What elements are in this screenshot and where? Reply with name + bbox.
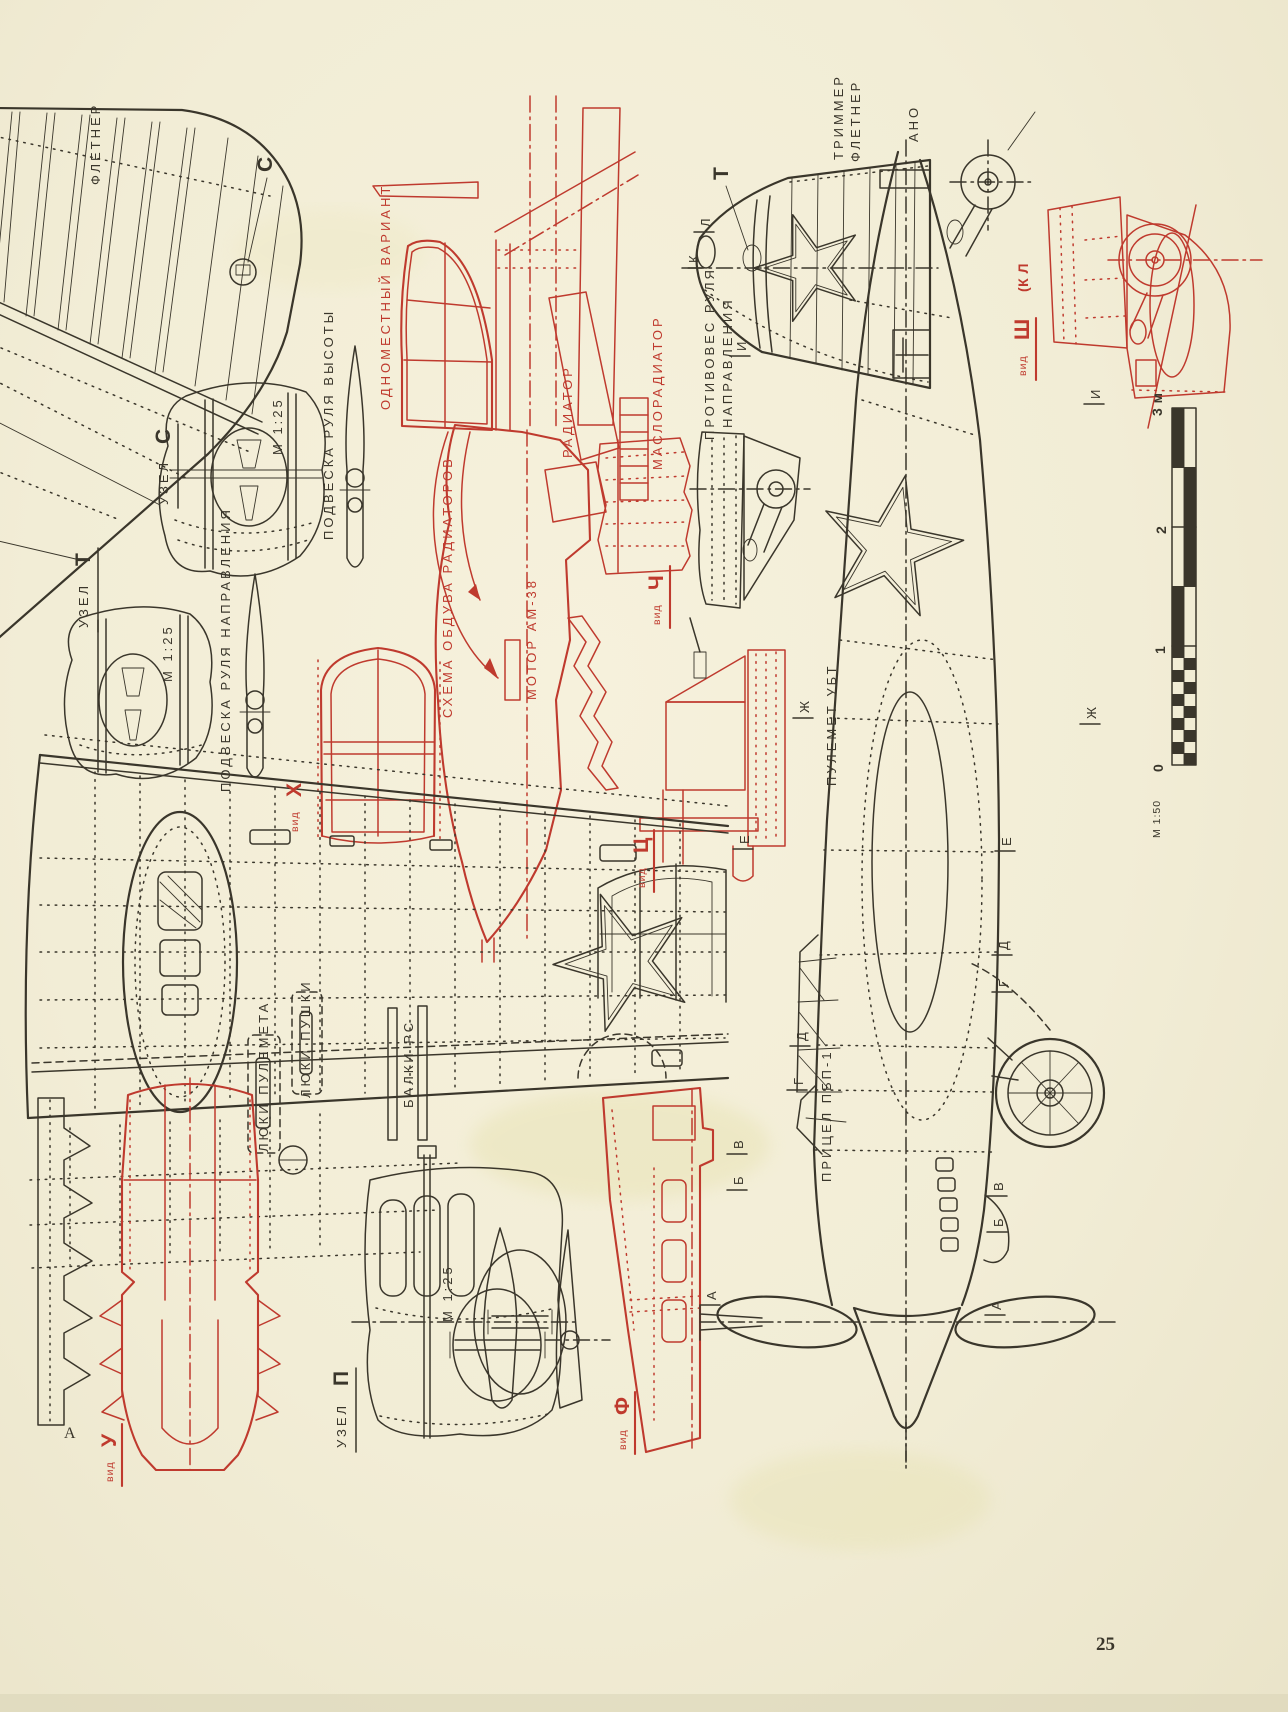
view-ch-drawing	[598, 438, 692, 574]
machine-gun-label: ПУЛЕМЕТ УБТ	[824, 663, 839, 786]
node-p-word: УЗЕЛ	[334, 1403, 349, 1448]
view-u-drawing	[100, 1078, 280, 1470]
section-mark-letter: Е	[737, 832, 752, 844]
callout-t-letter: Т	[710, 167, 733, 180]
tailwheel-drawing	[947, 112, 1035, 256]
stabilizer-plan-drawing	[0, 108, 302, 642]
scale-tick-1: 1	[1152, 646, 1168, 654]
view-ts-drawing	[568, 616, 785, 881]
section-mark-letter: И	[1088, 387, 1103, 399]
scale-bar: 0 1 2 3 м М 1:50	[1149, 392, 1196, 838]
node-t-word: УЗЕЛ	[76, 583, 91, 628]
section-mark-letter: Д	[996, 938, 1011, 950]
blueprint-figure: 0 1 2 3 м М 1:50 А А Б В Б В Г Д Г Д Е Е…	[0, 0, 1288, 1712]
scale-ratio: М 1:50	[1151, 800, 1163, 838]
section-mark-letter: В	[991, 1179, 1006, 1191]
section-mark-letter: Г	[996, 977, 1011, 987]
paper-stains	[0, 210, 1288, 1712]
node-c-word: УЗЕЛ	[156, 460, 171, 505]
gun-sight-label: ПРИЦЕЛ ПБП-1	[819, 1049, 834, 1182]
view-ts-prefix: вид	[636, 867, 648, 888]
node-t-scale: М 1:25	[160, 624, 175, 682]
section-mark-letter: А	[704, 1288, 719, 1300]
scale-tick-0: 0	[1150, 764, 1166, 772]
view-sh-suffix: (К Л	[1015, 263, 1031, 292]
cooling-scheme-label: СХЕМА ОБДУВА РАДИАТОРОВ	[440, 456, 455, 718]
control-surface-sections	[240, 346, 370, 777]
node-t-letter: Т	[72, 553, 95, 566]
section-mark-letter: Г	[791, 1075, 806, 1085]
node-c-letter: С	[152, 429, 175, 444]
view-u-letter: У	[98, 1433, 121, 1447]
fuselage-side-view-drawing	[700, 140, 1115, 1470]
section-mark-letter: А	[989, 1298, 1004, 1310]
rudder-hinge-label: ПОДВЕСКА РУЛЯ НАПРАВЛЕНИЯ	[218, 507, 233, 792]
counterweight-label-line1: ПРОТИВОВЕС РУЛЯ	[702, 267, 717, 440]
section-mark-letter: И	[734, 339, 749, 351]
section-mark-letter: Б	[991, 1215, 1006, 1227]
node-p-letter: П	[330, 1371, 353, 1386]
view-x-prefix: вид	[289, 811, 301, 832]
nav-light-label: АНО	[906, 105, 921, 142]
trimmer-label-line2: ФЛЕТНЕР	[848, 80, 863, 162]
scale-tick-3: 3 м	[1149, 392, 1165, 416]
view-u-prefix: вид	[104, 1461, 116, 1482]
node-p-scale: М 1:25	[440, 1264, 455, 1322]
page-number: 25	[1096, 1634, 1115, 1655]
section-mark-letter: Ж	[797, 698, 812, 713]
engine-label: МОТОР АМ-38	[524, 578, 539, 700]
mg-hatches-label: ЛЮКИ ПУЛЕМЕТА	[256, 1001, 271, 1152]
cannon-hatches-label: ЛЮКИ ПУШКИ	[298, 979, 313, 1098]
corner-mark: А	[64, 1425, 76, 1442]
rear-canopy-frame-drawing	[598, 864, 726, 1002]
rocket-rails-label: БАЛКИ РС	[401, 1020, 416, 1108]
callout-c-letter: С	[254, 157, 277, 172]
single-seat-label: ОДНОМЕСТНЫЙ ВАРИАНТ	[378, 184, 393, 410]
view-x-letter: X	[283, 783, 306, 797]
view-sh-letter: Ш	[1011, 319, 1034, 340]
trimmer-label-line1: ТРИММЕР	[831, 74, 846, 160]
section-mark-letter: Ж	[1084, 704, 1099, 719]
elevator-hinge-label: ПОДВЕСКА РУЛЯ ВЫСОТЫ	[321, 309, 336, 540]
windshield-frame-drawing	[318, 648, 440, 843]
radiator-label: РАДИАТОР	[560, 365, 575, 458]
scale-tick-2: 2	[1153, 526, 1169, 534]
counterweight-detail-drawing	[690, 432, 810, 608]
section-mark-letter: В	[731, 1137, 746, 1149]
fletner-label: ФЛЕТНЕР	[88, 103, 103, 185]
section-mark-letter: Д	[794, 1029, 809, 1041]
node-t-detail-drawing	[64, 607, 212, 779]
view-ch-prefix: вид	[651, 604, 663, 625]
node-c-detail-drawing	[159, 383, 325, 576]
view-ch-letter: Ч	[645, 575, 668, 590]
oil-cooler-label: МАСЛОРАДИАТОР	[650, 315, 665, 470]
view-f-prefix: вид	[617, 1429, 629, 1450]
magazine-page-scan: 0 1 2 3 м М 1:50 А А Б В Б В Г Д Г Д Е Е…	[0, 0, 1288, 1712]
section-mark-letter: Б	[731, 1173, 746, 1185]
node-c-scale: М 1:25	[270, 397, 285, 455]
section-mark-letter: К	[686, 252, 701, 263]
view-ts-letter: Ц	[630, 837, 653, 853]
section-mark-letter: Е	[999, 834, 1014, 846]
serrated-flap-drawing	[38, 1098, 92, 1425]
view-f-letter: Ф	[611, 1397, 634, 1415]
view-sh-prefix: вид	[1017, 355, 1029, 376]
section-mark-letter: Л	[698, 215, 713, 227]
counterweight-label-line2: НАПРАВЛЕНИЯ	[720, 297, 735, 428]
